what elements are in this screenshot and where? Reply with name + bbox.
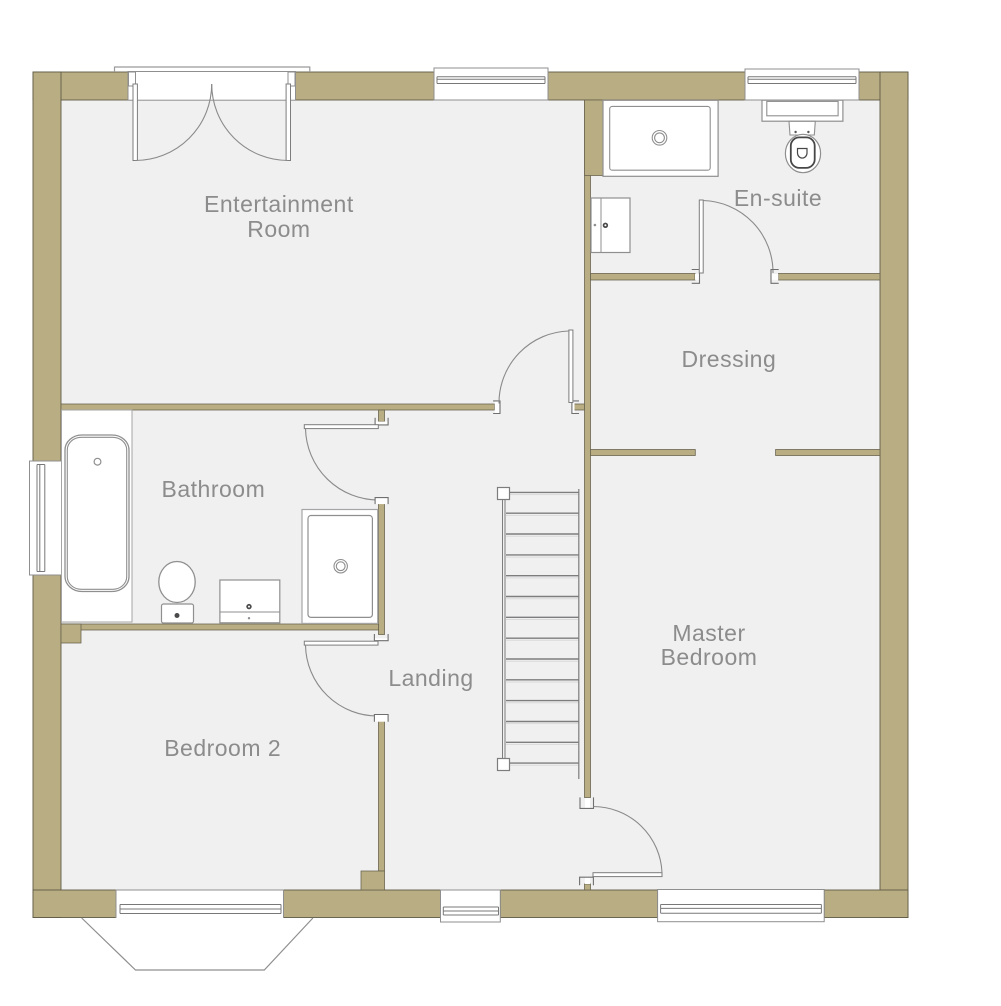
svg-text:Bathroom: Bathroom <box>162 476 266 502</box>
svg-text:Bedroom 2: Bedroom 2 <box>164 735 281 761</box>
svg-text:Entertainment: Entertainment <box>204 191 354 217</box>
svg-text:Room: Room <box>247 216 310 242</box>
svg-text:Dressing: Dressing <box>682 346 777 372</box>
svg-text:Master: Master <box>672 620 745 646</box>
svg-text:Bedroom: Bedroom <box>661 644 758 670</box>
svg-text:En-suite: En-suite <box>734 185 822 211</box>
svg-text:Landing: Landing <box>388 665 473 691</box>
